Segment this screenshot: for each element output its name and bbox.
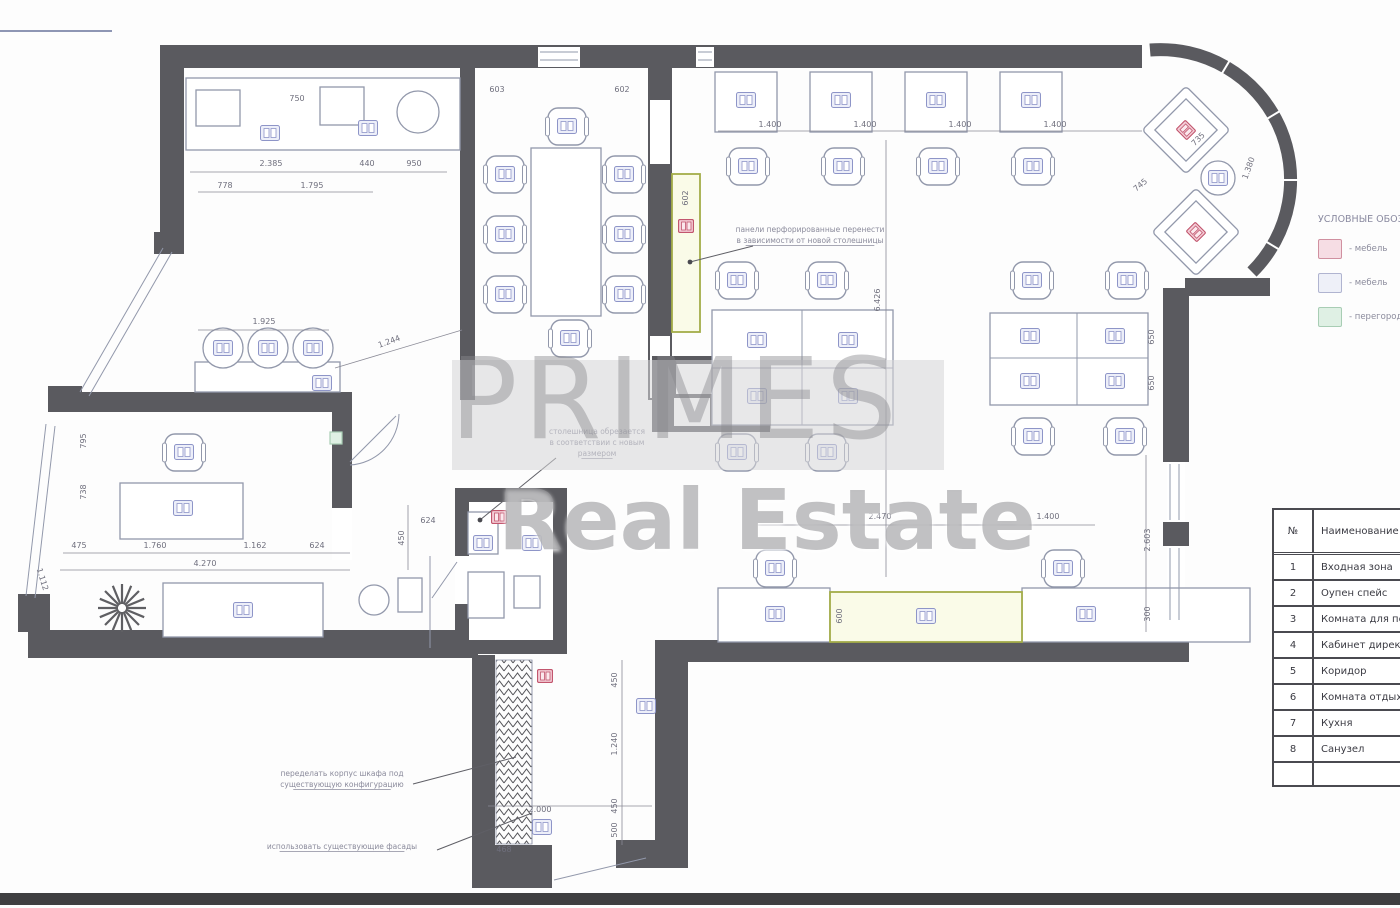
- round-furniture: [359, 585, 389, 615]
- lavender-swatch-icon: [1318, 273, 1342, 293]
- rooms-table-header: № Наименование: [1274, 510, 1400, 555]
- furniture-marker-icon: [174, 501, 193, 516]
- dimension-label: 6.426: [873, 289, 882, 312]
- furniture-marker-icon: [929, 159, 948, 174]
- legend: УСЛОВНЫЕ ОБОЗНАЧЕНИЯ - мебель- мебель- п…: [1318, 214, 1400, 341]
- dimension-label: 603: [489, 85, 504, 94]
- pink-furniture-marker-icon: [538, 670, 553, 683]
- dimension-label: 650: [1147, 329, 1156, 344]
- dimension-label: 468: [496, 845, 511, 854]
- room-number: 3: [1274, 607, 1314, 631]
- furniture-marker-icon: [1021, 329, 1040, 344]
- rooms-table-header-number: №: [1274, 510, 1314, 552]
- desk: [468, 572, 504, 618]
- detail-line: [554, 858, 646, 880]
- dimension-label: 1.240: [610, 733, 619, 756]
- dimension-label: 500: [610, 822, 619, 837]
- furniture-marker-icon: [1024, 429, 1043, 444]
- detail-line: [89, 252, 172, 396]
- furniture-marker-icon: [1022, 93, 1041, 108]
- furniture-marker-icon: [832, 93, 851, 108]
- table-row: 4Кабинет директора: [1274, 633, 1400, 659]
- watermark-text-primes: PRIMES: [450, 344, 950, 456]
- furniture-marker-icon: [818, 273, 837, 288]
- furniture-marker-icon: [1116, 429, 1135, 444]
- table-row: 1Входная зона: [1274, 555, 1400, 581]
- dimension-label: 440: [359, 159, 374, 168]
- dimension-label: 2.385: [260, 159, 283, 168]
- furniture-marker-icon: [834, 159, 853, 174]
- table-row: 3Комната для переговоров: [1274, 607, 1400, 633]
- room-name: Комната отдыха: [1314, 692, 1400, 703]
- annotation-note: существующую конфигурацию: [280, 780, 403, 789]
- dimension-label: 1.400: [854, 120, 877, 129]
- legend-item-label: - мебель: [1349, 278, 1387, 288]
- annotation-note: переделать корпус шкафа под: [280, 769, 403, 778]
- desk: [990, 313, 1148, 405]
- table-row: 8Санузел: [1274, 737, 1400, 763]
- furniture-marker-icon: [175, 445, 194, 460]
- furniture-marker-icon: [533, 820, 552, 835]
- legend-item: - мебель: [1318, 273, 1400, 293]
- desk: [1022, 588, 1250, 642]
- dimension-label: 950: [406, 159, 421, 168]
- furniture-marker-icon: [1021, 374, 1040, 389]
- furniture-marker-icon: [496, 287, 515, 302]
- furniture-marker-icon: [474, 536, 493, 551]
- dimension-label: 602: [681, 190, 690, 205]
- furniture-marker-icon: [496, 227, 515, 242]
- desk: [320, 87, 364, 125]
- desk: [514, 576, 540, 608]
- furniture-marker-icon: [261, 126, 280, 141]
- room-name: Коридор: [1314, 666, 1366, 677]
- furniture-marker-icon: [496, 167, 515, 182]
- table-row: 6Комната отдыха: [1274, 685, 1400, 711]
- desk: [531, 148, 601, 316]
- desk: [196, 90, 240, 126]
- dimension-label: 624: [420, 516, 435, 525]
- room-name: Комната для переговоров: [1314, 614, 1400, 625]
- furniture-marker-icon: [1106, 374, 1125, 389]
- furniture-marker-icon: [1209, 171, 1228, 186]
- furniture-marker-icon: [615, 167, 634, 182]
- room-number: 1: [1274, 555, 1314, 579]
- room-number: [1274, 763, 1314, 785]
- furniture-marker-icon: [927, 93, 946, 108]
- dimension-label: 738: [79, 484, 88, 499]
- legend-item: - перегородки: [1318, 307, 1400, 327]
- room-number: 7: [1274, 711, 1314, 735]
- dimension-label: 2.603: [1143, 529, 1152, 552]
- dimension-label: 1.400: [1037, 512, 1060, 521]
- room-number: 6: [1274, 685, 1314, 709]
- table-row-empty: [1274, 763, 1400, 785]
- pink-furniture-marker-icon: [679, 220, 694, 233]
- legend-item-label: - мебель: [1349, 244, 1387, 254]
- furniture-marker-icon: [304, 341, 323, 356]
- dimension-label: 624: [309, 541, 324, 550]
- desk: [398, 578, 422, 612]
- furniture-marker-icon: [1023, 273, 1042, 288]
- furniture-marker-icon: [214, 341, 233, 356]
- leader-dot: [478, 518, 483, 523]
- dimension-label: 745: [1132, 177, 1149, 194]
- dimension-label: 1.925: [253, 317, 276, 326]
- furniture-marker-icon: [1024, 159, 1043, 174]
- wardrobe-hatch: [496, 660, 532, 844]
- dimension-label: 1.400: [1044, 120, 1067, 129]
- room-name: Санузел: [1314, 744, 1364, 755]
- furniture-marker-icon: [1054, 561, 1073, 576]
- dimension-label: 650: [1147, 375, 1156, 390]
- pink-swatch-icon: [1318, 239, 1342, 259]
- furniture-marker-icon: [558, 119, 577, 134]
- legend-item: - мебель: [1318, 239, 1400, 259]
- furniture-marker-icon: [1106, 329, 1125, 344]
- table-row: 5Коридор: [1274, 659, 1400, 685]
- round-furniture: [397, 91, 439, 133]
- furniture-marker-icon: [1118, 273, 1137, 288]
- furniture-marker-icon: [1077, 607, 1096, 622]
- room-number: 8: [1274, 737, 1314, 761]
- room-name: Входная зона: [1314, 562, 1393, 573]
- room-number: 2: [1274, 581, 1314, 605]
- room-name: Кабинет директора: [1314, 640, 1400, 651]
- furniture-marker-icon: [739, 159, 758, 174]
- detail-line: [80, 248, 163, 392]
- rooms-table-header-name: Наименование: [1314, 526, 1399, 537]
- legend-title: УСЛОВНЫЕ ОБОЗНАЧЕНИЯ: [1318, 214, 1400, 225]
- detail-line: [350, 416, 396, 462]
- dimension-label: 1.380: [1241, 156, 1257, 181]
- furniture-marker-icon: [737, 93, 756, 108]
- dimension-label: 600: [835, 608, 844, 623]
- table-row: 7Кухня: [1274, 711, 1400, 737]
- dimension-label: 602: [614, 85, 629, 94]
- room-number: 4: [1274, 633, 1314, 657]
- table-row: 2Оупен спейс: [1274, 581, 1400, 607]
- furniture-marker-icon: [234, 603, 253, 618]
- green-swatch-icon: [1318, 307, 1342, 327]
- annotation-note: панели перфорированные перенести: [736, 225, 885, 234]
- dimension-label: 778: [217, 181, 232, 190]
- furniture-marker-icon: [313, 376, 332, 391]
- furniture-marker-icon: [728, 273, 747, 288]
- bottom-bar: [0, 893, 1400, 905]
- dimension-label: 1.162: [244, 541, 267, 550]
- dimension-label: 475: [71, 541, 86, 550]
- furniture-marker-icon: [637, 699, 656, 714]
- office-door-arc: [350, 414, 399, 465]
- dimension-label: 1.795: [301, 181, 324, 190]
- dimension-label: 300: [1143, 606, 1152, 621]
- dimension-label: 1.400: [759, 120, 782, 129]
- dimension-label: 750: [289, 94, 304, 103]
- room-name: Оупен спейс: [1314, 588, 1387, 599]
- dimension-label: 1.400: [949, 120, 972, 129]
- dimension-label: 2.000: [529, 805, 552, 814]
- dimension-label: 4.270: [194, 559, 217, 568]
- room-number: 5: [1274, 659, 1314, 683]
- plant: [98, 584, 146, 632]
- legend-item-label: - перегородки: [1349, 312, 1400, 322]
- dimension-label: 795: [79, 433, 88, 448]
- dimension-label: 450: [397, 530, 406, 545]
- furniture-marker-icon: [766, 607, 785, 622]
- dimension-label: 1.244: [377, 334, 402, 350]
- furniture-marker-icon: [615, 287, 634, 302]
- annotation-note: использовать существующие фасады: [267, 842, 417, 851]
- armchair: [1152, 188, 1240, 276]
- dimension-label: 1.760: [144, 541, 167, 550]
- furniture-marker-icon: [259, 341, 278, 356]
- annotation-note: в зависимости от новой столешницы: [737, 236, 884, 245]
- dimension-label: 450: [610, 672, 619, 687]
- leader-dot: [688, 260, 693, 265]
- furniture-marker-icon: [615, 227, 634, 242]
- detail-line: [432, 562, 457, 598]
- watermark-text-realestate: Real Estate: [498, 478, 1036, 562]
- furniture-marker-icon: [359, 121, 378, 136]
- rooms-table: № Наименование 1Входная зона2Оупен спейс…: [1272, 508, 1400, 787]
- dimension-label: 450: [610, 798, 619, 813]
- green-partition-marker-icon: [330, 432, 342, 444]
- furniture-marker-icon: [917, 609, 936, 624]
- room-name: Кухня: [1314, 718, 1353, 729]
